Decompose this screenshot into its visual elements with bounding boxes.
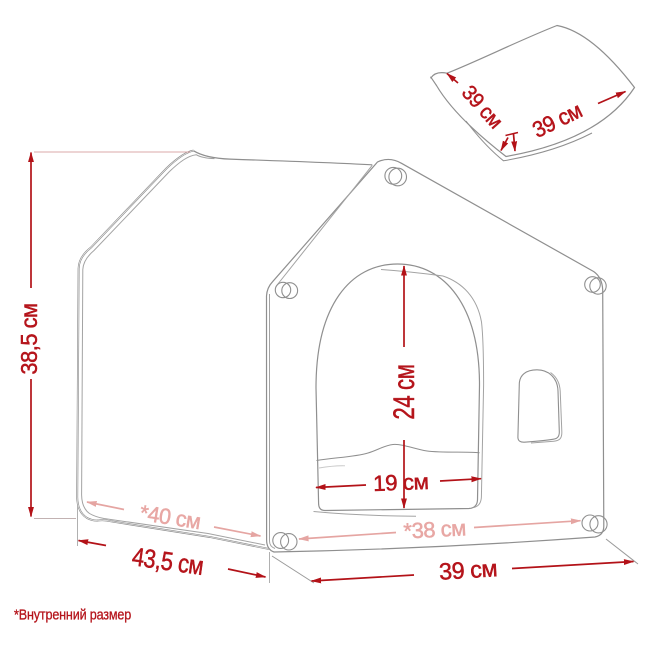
svg-text:*38 см: *38 см [403, 515, 467, 543]
svg-text:38,5 см: 38,5 см [16, 303, 42, 374]
svg-text:39 см: 39 см [438, 555, 498, 584]
svg-text:*40 см: *40 см [138, 500, 202, 534]
svg-text:39 см: 39 см [528, 97, 586, 143]
svg-text:43,5 см: 43,5 см [130, 543, 205, 582]
svg-text:39 см: 39 см [457, 81, 507, 133]
svg-text:24 см: 24 см [387, 364, 421, 419]
svg-text:19 см: 19 см [373, 469, 429, 496]
svg-text:*Внутренний размер: *Внутренний размер [14, 605, 132, 622]
